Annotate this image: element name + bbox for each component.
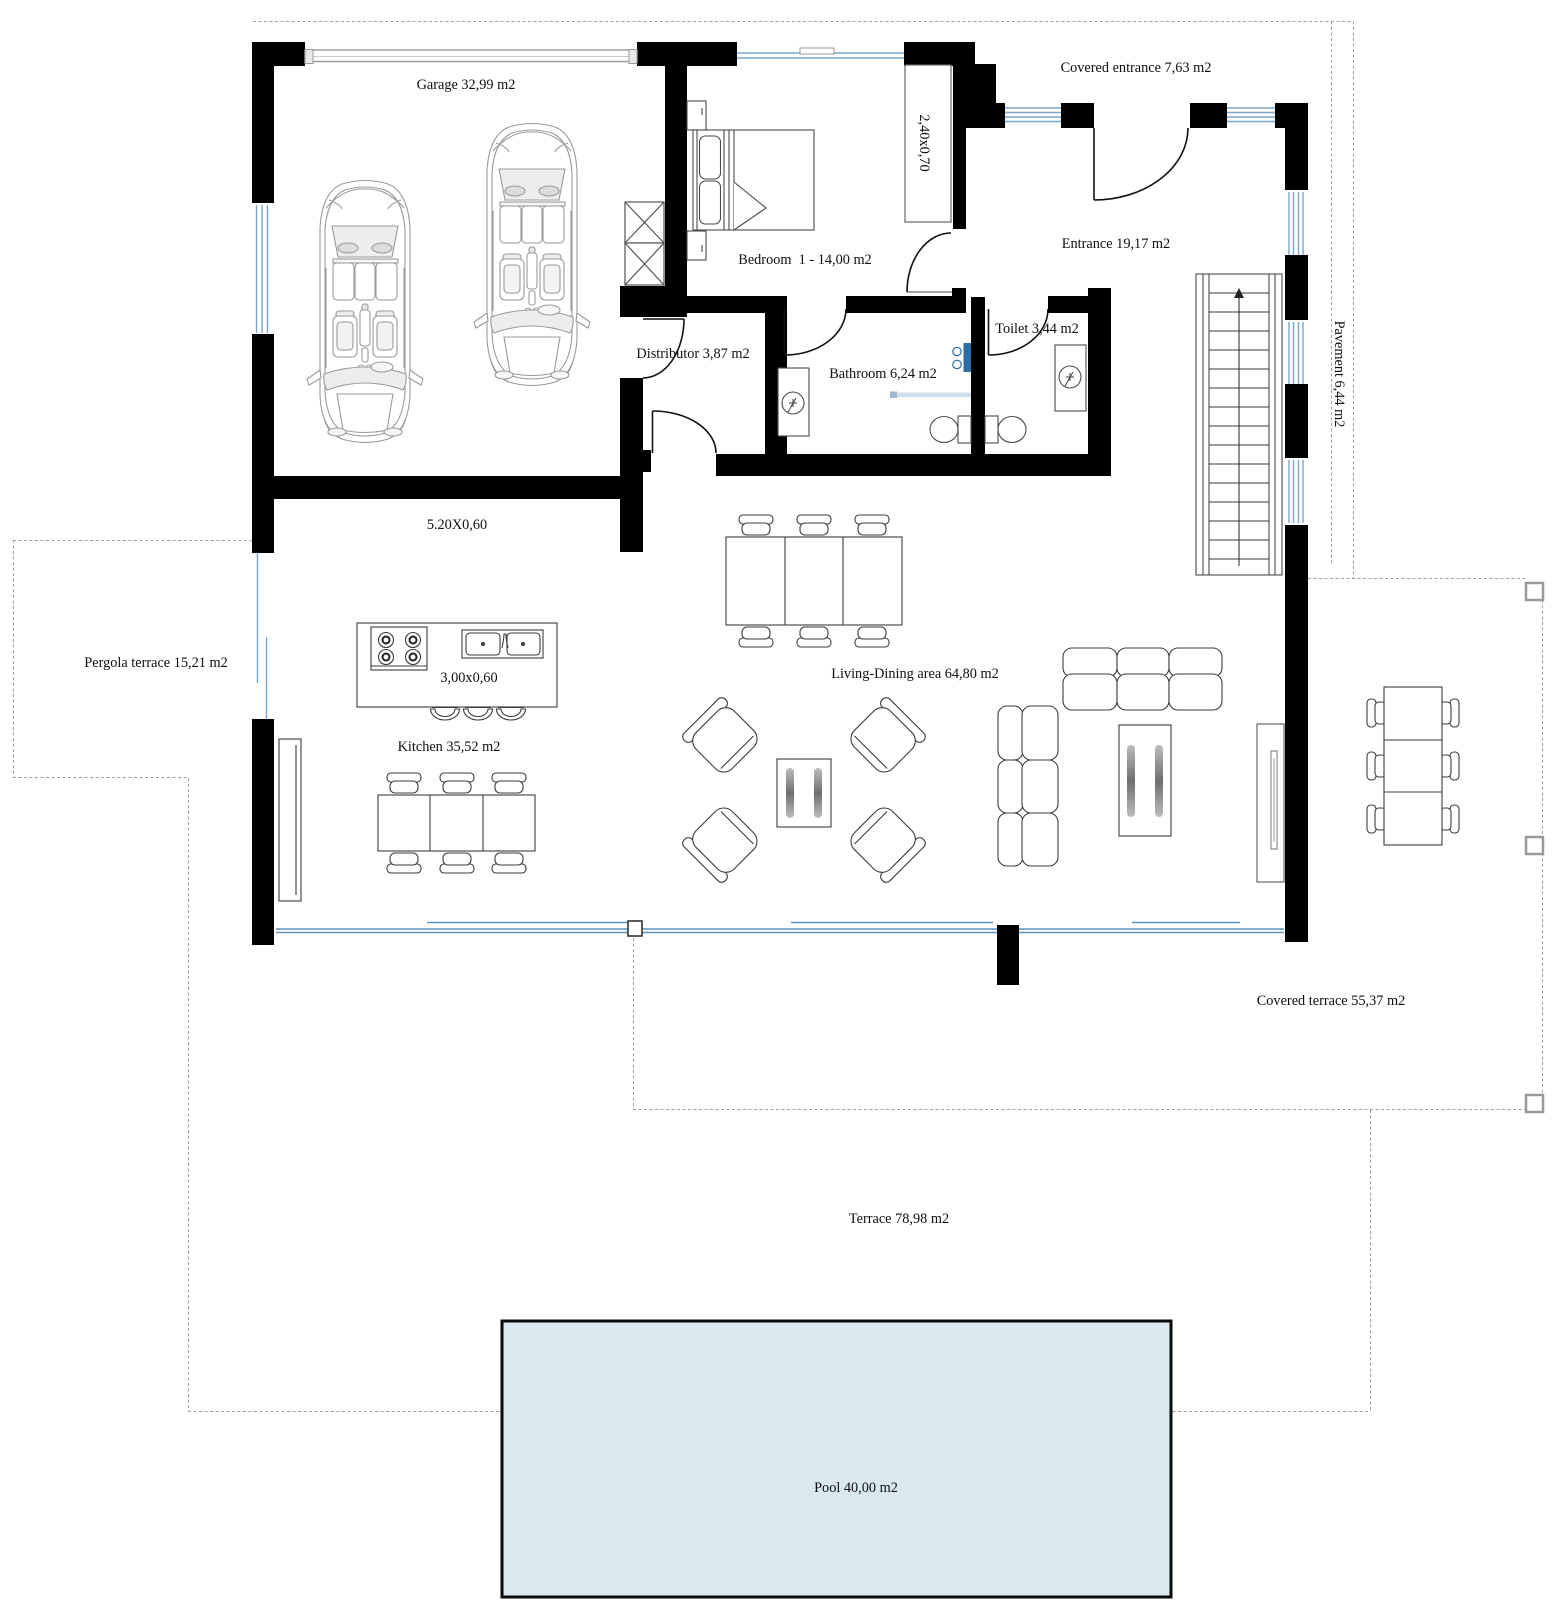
svg-text:Distributor 3,87 m2: Distributor 3,87 m2 [636,346,749,362]
svg-text:Terrace 78,98 m2: Terrace 78,98 m2 [849,1211,949,1227]
svg-text:Bedroom 1 - 14,00 m2: Bedroom 1 - 14,00 m2 [738,252,871,268]
svg-text:Pavement 6,44 m2: Pavement 6,44 m2 [1331,321,1347,428]
svg-text:5.20X0,60: 5.20X0,60 [427,517,487,533]
svg-text:Covered terrace 55,37 m2: Covered terrace 55,37 m2 [1257,993,1405,1009]
svg-text:Pool 40,00 m2: Pool 40,00 m2 [814,1480,898,1496]
svg-text:Garage 32,99 m2: Garage 32,99 m2 [417,77,516,93]
svg-text:Pergola terrace 15,21 m2: Pergola terrace 15,21 m2 [84,655,227,671]
svg-text:Living-Dining area 64,80 m2: Living-Dining area 64,80 m2 [831,666,999,682]
svg-text:Toilet 3,44 m2: Toilet 3,44 m2 [995,321,1079,337]
svg-text:Bathroom 6,24 m2: Bathroom 6,24 m2 [829,366,937,382]
svg-text:3,00x0,60: 3,00x0,60 [440,670,497,686]
svg-text:Covered entrance 7,63 m2: Covered entrance 7,63 m2 [1061,60,1212,76]
svg-text:Kitchen 35,52 m2: Kitchen 35,52 m2 [398,739,501,755]
svg-text:2,40x0,70: 2,40x0,70 [916,114,932,171]
svg-text:Entrance 19,17 m2: Entrance 19,17 m2 [1062,236,1170,252]
